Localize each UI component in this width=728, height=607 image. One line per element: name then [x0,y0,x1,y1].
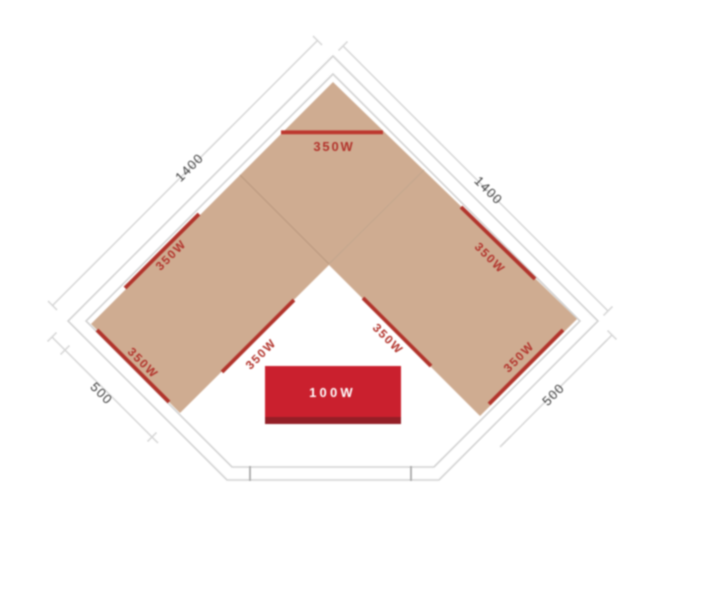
svg-text:1400: 1400 [172,150,206,184]
svg-text:100W: 100W [309,385,356,400]
svg-text:350W: 350W [313,139,354,154]
svg-text:1400: 1400 [471,173,505,207]
svg-text:500: 500 [87,379,115,407]
